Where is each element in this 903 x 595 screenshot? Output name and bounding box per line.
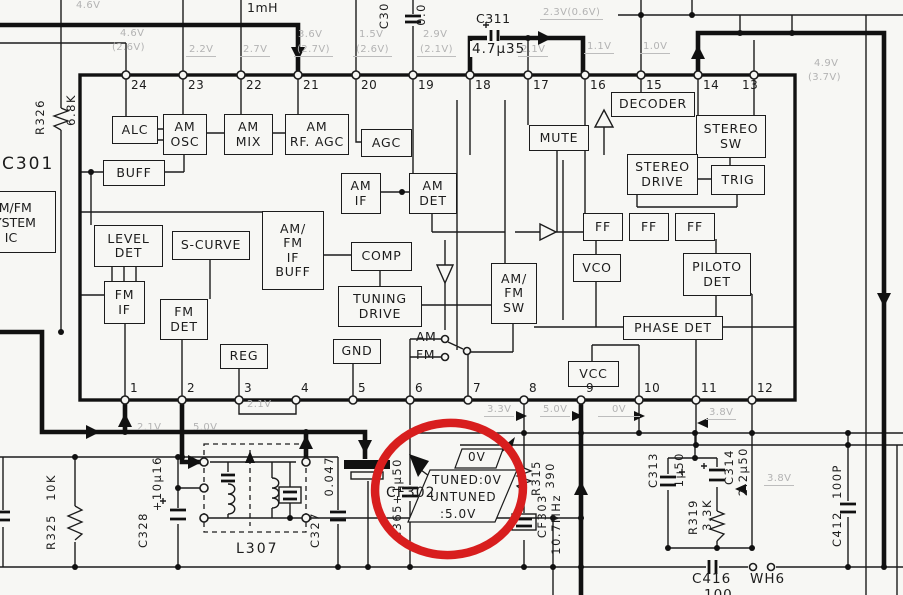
r319-ref: R319 bbox=[686, 499, 700, 535]
pin-7: 7 bbox=[473, 381, 481, 395]
voltage-pin16: 1.1V bbox=[584, 41, 614, 54]
pin-23: 23 bbox=[188, 78, 204, 92]
switch-fm-label: FM bbox=[416, 347, 435, 362]
block-am-rf-agc: AM RF. AGC bbox=[285, 114, 349, 155]
voltage-pin7: 3.3V bbox=[484, 404, 514, 417]
callout-tuned: TUNED:0V bbox=[432, 473, 502, 487]
voltage-pin19-alt: (2.1V) bbox=[417, 44, 456, 57]
voltage-c314: 3.8V bbox=[764, 473, 794, 486]
c313-ref: C313 bbox=[646, 452, 660, 488]
block-ff1: FF bbox=[583, 213, 623, 241]
block-phase-det: PHASE DET bbox=[623, 316, 723, 340]
voltage-pin20: 1.5V bbox=[359, 29, 383, 40]
pin-21: 21 bbox=[303, 78, 319, 92]
pin-2: 2 bbox=[187, 381, 195, 395]
block-s-curve: S-CURVE bbox=[172, 231, 250, 260]
ic-reference: C301 bbox=[2, 154, 54, 174]
pin-10: 10 bbox=[644, 381, 660, 395]
voltage-topleft: 4.6V bbox=[76, 0, 100, 11]
r325-value: 10K bbox=[44, 474, 58, 501]
pin-19: 19 bbox=[418, 78, 434, 92]
voltage-pin3: 2.1V bbox=[247, 399, 271, 410]
r326-value: 6.8K bbox=[64, 94, 78, 126]
r315-ref: R315 bbox=[529, 460, 543, 496]
voltage-pin17: 2.1V bbox=[518, 44, 548, 57]
block-mute: MUTE bbox=[529, 125, 589, 151]
voltage-pin20-alt: (2.6V) bbox=[353, 44, 392, 57]
block-am-if: AM IF bbox=[341, 173, 381, 214]
pin-13: 13 bbox=[742, 78, 758, 92]
voltage-pin11: 3.8V bbox=[706, 407, 736, 420]
block-ff3: FF bbox=[675, 213, 715, 241]
callout-untuned: UNTUNED bbox=[430, 490, 497, 504]
c416-value: 100 bbox=[704, 587, 733, 595]
block-vco: VCO bbox=[573, 254, 621, 282]
block-fm-det: FM DET bbox=[160, 299, 208, 340]
voltage-pin13: 4.9V bbox=[814, 58, 838, 69]
wh6-ref: WH6 bbox=[750, 571, 785, 587]
voltage-bottomleft-1: 2.1V bbox=[134, 422, 164, 435]
block-tuning-drive: TUNING DRIVE bbox=[338, 286, 422, 327]
c309-value: 0.0 bbox=[414, 3, 428, 26]
callout-0v: 0V bbox=[468, 450, 486, 464]
voltage-pin24-alt: (2.6V) bbox=[112, 42, 145, 53]
block-trig: TRIG bbox=[711, 165, 765, 195]
voltage-bottomleft-2: 5.0V bbox=[190, 422, 220, 435]
voltage-pin21: 3.6V bbox=[298, 29, 322, 40]
block-amfm-sw: AM/ FM SW bbox=[491, 263, 537, 324]
pin-4: 4 bbox=[301, 381, 309, 395]
cf303-ref: CF303 bbox=[535, 494, 549, 538]
c328-ref: C328 bbox=[136, 512, 150, 548]
r326-ref: R326 bbox=[33, 99, 47, 135]
block-piloto-det: PILOTO DET bbox=[683, 253, 751, 296]
c412-value: 100P bbox=[830, 464, 844, 499]
pin-12: 12 bbox=[757, 381, 773, 395]
pin-11: 11 bbox=[701, 381, 717, 395]
block-reg: REG bbox=[220, 344, 268, 369]
voltage-pin23: 2.2V bbox=[186, 44, 216, 57]
c311-ref: C311 bbox=[476, 11, 511, 26]
pin-9: 9 bbox=[586, 381, 594, 395]
c412-ref: C412 bbox=[830, 511, 844, 547]
voltage-pin24: 4.6V bbox=[120, 28, 144, 39]
block-stereo-sw: STEREO SW bbox=[696, 115, 766, 158]
c365-value: +1μ50 bbox=[390, 458, 404, 504]
pin-14: 14 bbox=[703, 78, 719, 92]
block-buff: BUFF bbox=[103, 160, 165, 186]
block-amfm-if-buff: AM/ FM IF BUFF bbox=[262, 211, 324, 290]
callout-untuned-value: :5.0V bbox=[440, 507, 476, 521]
pin-22: 22 bbox=[246, 78, 262, 92]
block-am-det: AM DET bbox=[409, 173, 457, 214]
c327-value: 0.047 bbox=[322, 456, 336, 496]
block-comp: COMP bbox=[351, 242, 412, 271]
voltage-pin9: 0V bbox=[598, 404, 640, 417]
voltage-pin8: 5.0V bbox=[540, 404, 570, 417]
switch-am-label: AM bbox=[416, 329, 436, 344]
voltage-pin22: 2.7V bbox=[240, 44, 270, 57]
pin-5: 5 bbox=[358, 381, 366, 395]
pin-20: 20 bbox=[361, 78, 377, 92]
l307-ref: L307 bbox=[236, 541, 279, 557]
c314-ref: C314 bbox=[722, 449, 736, 485]
pin-18: 18 bbox=[475, 78, 491, 92]
c328-value: +10μ16 bbox=[150, 456, 164, 511]
pin-6: 6 bbox=[415, 381, 423, 395]
pin-1: 1 bbox=[130, 381, 138, 395]
block-am-osc: AM OSC bbox=[163, 114, 207, 155]
ic-name-box: AM/FM SYSTEM IC bbox=[0, 191, 56, 253]
inductor-value: 1mH bbox=[247, 0, 278, 15]
c309-ref: C30 bbox=[377, 2, 391, 29]
pin-15: 15 bbox=[646, 78, 662, 92]
block-decoder: DECODER bbox=[611, 92, 695, 117]
c314-value: 2.2μ50 bbox=[736, 447, 750, 496]
c416-ref: C416 bbox=[692, 571, 731, 587]
pin-17: 17 bbox=[533, 78, 549, 92]
r325-ref: R325 bbox=[44, 514, 58, 550]
pin-16: 16 bbox=[590, 78, 606, 92]
r319-value: 3.3K bbox=[700, 499, 714, 531]
c313-value: 1μ50 bbox=[672, 452, 686, 487]
block-ff2: FF bbox=[629, 213, 669, 241]
pin-8: 8 bbox=[529, 381, 537, 395]
voltage-pin18: 2.3V(0.6V) bbox=[540, 7, 603, 20]
voltage-pin19: 2.9V bbox=[423, 29, 447, 40]
voltage-pin21-alt: (2.7V) bbox=[294, 44, 333, 57]
voltage-pin13-alt: (3.7V) bbox=[808, 72, 841, 83]
block-gnd: GND bbox=[333, 339, 381, 364]
pin-3: 3 bbox=[244, 381, 252, 395]
schematic-page: ALC AM OSC AM MIX AM RF. AGC AGC BUFF MU… bbox=[0, 0, 903, 595]
block-alc: ALC bbox=[112, 116, 158, 144]
pin-24: 24 bbox=[131, 78, 147, 92]
cf303-value: 10.7MHz bbox=[549, 494, 563, 555]
c365-ref: C365 bbox=[390, 504, 404, 540]
block-level-det: LEVEL DET bbox=[94, 225, 163, 267]
voltage-pin15: 1.0V bbox=[640, 41, 670, 54]
block-agc: AGC bbox=[361, 129, 412, 157]
cf302-symbol bbox=[344, 460, 390, 479]
r315-value: 390 bbox=[543, 462, 557, 488]
block-fm-if: FM IF bbox=[104, 281, 145, 324]
block-am-mix: AM MIX bbox=[224, 114, 273, 155]
block-stereo-drive: STEREO DRIVE bbox=[627, 154, 698, 195]
c327-ref: C327 bbox=[308, 512, 322, 548]
